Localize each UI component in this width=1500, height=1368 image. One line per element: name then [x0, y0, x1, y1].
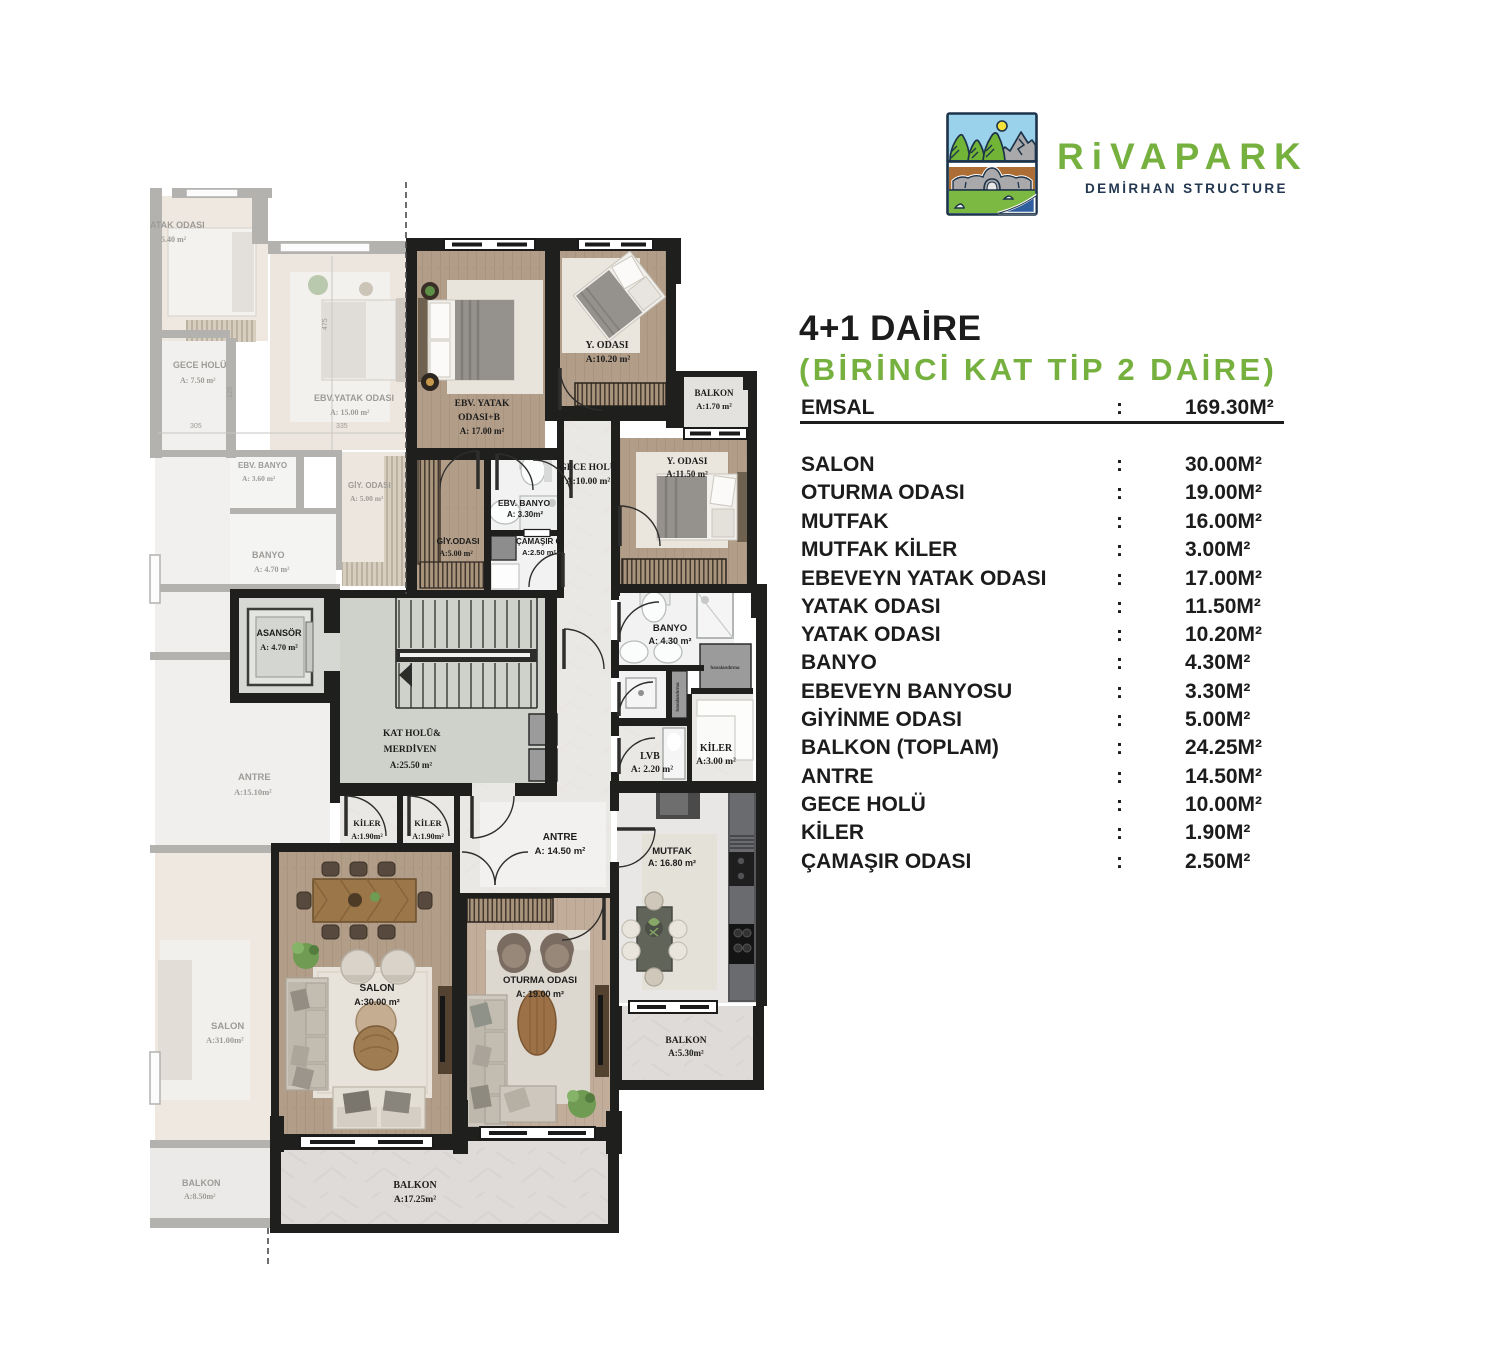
svg-text:EBEVEYN BANYOSU: EBEVEYN BANYOSU: [801, 680, 1012, 703]
svg-text:A:25.50 m²: A:25.50 m²: [390, 760, 432, 770]
svg-text:ATAK ODASI: ATAK ODASI: [150, 220, 205, 230]
svg-text:ÇAMAŞIR ODASI: ÇAMAŞIR ODASI: [801, 850, 971, 873]
svg-text:ANTRE: ANTRE: [801, 765, 873, 788]
svg-text:10.00M²: 10.00M²: [1185, 793, 1262, 816]
svg-text:BALKON (TOPLAM): BALKON (TOPLAM): [801, 736, 999, 759]
svg-text:SALON: SALON: [360, 983, 395, 994]
svg-text::: :: [1116, 651, 1123, 674]
svg-text:BALKON: BALKON: [393, 1180, 437, 1191]
svg-text:BANYO: BANYO: [653, 623, 687, 634]
svg-text:Y. ODASI: Y. ODASI: [667, 457, 708, 467]
svg-text:BALKON: BALKON: [694, 388, 734, 398]
svg-text:3.00M²: 3.00M²: [1185, 538, 1250, 561]
svg-text:EBV. YATAK: EBV. YATAK: [455, 399, 510, 409]
svg-text::: :: [1116, 765, 1123, 788]
svg-text:BALKON: BALKON: [665, 1036, 706, 1046]
svg-text:MUTFAK: MUTFAK: [652, 846, 692, 857]
svg-text:17.00M²: 17.00M²: [1185, 567, 1262, 590]
svg-text:120: 120: [227, 386, 234, 398]
svg-text:A:10.00 m²: A:10.00 m²: [566, 477, 611, 487]
svg-text:Y. ODASI: Y. ODASI: [586, 340, 629, 351]
svg-text:335: 335: [336, 423, 348, 430]
svg-text:A:31.00m²: A:31.00m²: [206, 1035, 244, 1045]
svg-text:24.25M²: 24.25M²: [1185, 736, 1262, 759]
svg-text::: :: [1116, 821, 1123, 844]
svg-text:KİLER: KİLER: [353, 818, 381, 828]
svg-text:EBV. BANYO: EBV. BANYO: [238, 461, 287, 470]
svg-text:ANTRE: ANTRE: [238, 772, 271, 783]
svg-text:A:17.25m²: A:17.25m²: [394, 1195, 436, 1205]
svg-text:DEMİRHAN STRUCTURE: DEMİRHAN STRUCTURE: [1085, 181, 1288, 196]
svg-text:A: 4.30 m²: A: 4.30 m²: [648, 636, 691, 646]
svg-text:A: 7.50 m²: A: 7.50 m²: [180, 376, 216, 385]
svg-text:SALON: SALON: [211, 1021, 244, 1032]
svg-text:A:8.50m²: A:8.50m²: [184, 1192, 216, 1201]
svg-text::: :: [1116, 850, 1123, 873]
svg-text:19.00M²: 19.00M²: [1185, 481, 1262, 504]
svg-text:A: 19.00 m²: A: 19.00 m²: [516, 989, 564, 999]
svg-text:ASANSÖR: ASANSÖR: [256, 628, 302, 638]
svg-text:4.30M²: 4.30M²: [1185, 651, 1250, 674]
svg-text:A:15.10m²: A:15.10m²: [234, 787, 272, 797]
svg-text:GİY.ODASI: GİY.ODASI: [437, 536, 480, 546]
svg-text::: :: [1116, 708, 1123, 731]
svg-text:havalandırma: havalandırma: [675, 682, 680, 712]
svg-text:GİY. ODASI: GİY. ODASI: [348, 481, 391, 490]
svg-text:A:1.90m²: A:1.90m²: [351, 832, 383, 841]
svg-text:KİLER: KİLER: [801, 821, 864, 844]
svg-text:A:1.90m²: A:1.90m²: [412, 832, 444, 841]
svg-text:RiVAPARK: RiVAPARK: [1057, 136, 1309, 177]
svg-text:5.40 m²: 5.40 m²: [161, 235, 187, 244]
svg-text:ANTRE: ANTRE: [543, 832, 578, 843]
svg-text:A:1.70 m²: A:1.70 m²: [696, 401, 732, 411]
svg-text:A:3.00 m²: A:3.00 m²: [696, 757, 736, 767]
svg-text:11.50M²: 11.50M²: [1185, 595, 1261, 618]
svg-text:MERDİVEN: MERDİVEN: [384, 743, 437, 755]
svg-text:14.50M²: 14.50M²: [1185, 765, 1262, 788]
svg-text:GİYİNME ODASI: GİYİNME ODASI: [801, 708, 962, 731]
svg-text:A:5.00 m²: A:5.00 m²: [439, 549, 473, 558]
svg-text:16.00M²: 16.00M²: [1185, 510, 1262, 533]
svg-text::: :: [1116, 793, 1123, 816]
svg-text::: :: [1116, 736, 1123, 759]
svg-text:A:5.30m²: A:5.30m²: [668, 1048, 704, 1058]
svg-text:4+1 DAİRE: 4+1 DAİRE: [799, 309, 982, 348]
svg-text:ÇAMAŞIR O.: ÇAMAŞIR O.: [516, 537, 564, 546]
svg-text::: :: [1116, 453, 1123, 476]
svg-text:YATAK ODASI: YATAK ODASI: [801, 595, 941, 618]
svg-text:BANYO: BANYO: [252, 550, 285, 560]
svg-text::: :: [1116, 595, 1123, 618]
svg-text:havalandırma: havalandırma: [710, 665, 740, 670]
svg-text:1.90M²: 1.90M²: [1185, 821, 1250, 844]
svg-text:A:11.50 m²: A:11.50 m²: [666, 469, 708, 479]
svg-text:169.30M²: 169.30M²: [1185, 396, 1274, 419]
svg-text:LVB: LVB: [640, 751, 660, 762]
svg-text:BANYO: BANYO: [801, 651, 877, 674]
svg-text:2.50M²: 2.50M²: [1185, 850, 1250, 873]
svg-text:GECE HOLÜ: GECE HOLÜ: [173, 360, 227, 370]
svg-text::: :: [1116, 680, 1123, 703]
svg-text::: :: [1116, 481, 1123, 504]
svg-text:305: 305: [190, 423, 202, 430]
svg-text:EBEVEYN YATAK ODASI: EBEVEYN YATAK ODASI: [801, 567, 1046, 590]
svg-text:YATAK ODASI: YATAK ODASI: [801, 623, 941, 646]
svg-text:5.00M²: 5.00M²: [1185, 708, 1250, 731]
svg-text:A: 17.00 m²: A: 17.00 m²: [460, 426, 505, 436]
svg-text:A:2.50 m²: A:2.50 m²: [522, 548, 556, 557]
svg-text::: :: [1116, 623, 1123, 646]
svg-text:KİLER: KİLER: [414, 818, 442, 828]
svg-text:EBV. BANYO: EBV. BANYO: [498, 498, 551, 508]
svg-text::: :: [1116, 538, 1123, 561]
svg-text:ODASI+B: ODASI+B: [458, 413, 501, 423]
svg-text:BALKON: BALKON: [182, 1178, 221, 1188]
svg-text:A:30.00 m²: A:30.00 m²: [354, 997, 400, 1007]
svg-text:A: 2.20 m²: A: 2.20 m²: [631, 765, 673, 775]
svg-text:475: 475: [322, 318, 329, 330]
svg-text:A: 4.70 m²: A: 4.70 m²: [260, 642, 298, 652]
svg-text:A:10.20 m²: A:10.20 m²: [586, 355, 631, 365]
svg-text:A: 14.50 m²: A: 14.50 m²: [535, 846, 586, 857]
svg-text:3.30M²: 3.30M²: [1185, 680, 1250, 703]
svg-text:MUTFAK: MUTFAK: [801, 510, 889, 533]
svg-text:A: 4.70 m²: A: 4.70 m²: [254, 565, 290, 574]
svg-text:A: 3.30m²: A: 3.30m²: [507, 510, 543, 519]
svg-text:EMSAL: EMSAL: [801, 396, 875, 419]
svg-text:KİLER: KİLER: [700, 742, 733, 754]
svg-text:SALON: SALON: [801, 453, 875, 476]
svg-text:A: 15.00 m²: A: 15.00 m²: [330, 408, 370, 417]
svg-text:(BİRİNCİ KAT TİP 2 DAİRE): (BİRİNCİ KAT TİP 2 DAİRE): [799, 352, 1277, 387]
svg-text::: :: [1116, 396, 1123, 419]
svg-text::: :: [1116, 567, 1123, 590]
svg-text:A: 5.00 m²: A: 5.00 m²: [350, 494, 384, 503]
svg-text:10.20M²: 10.20M²: [1185, 623, 1262, 646]
svg-text:GECE HOLÜ: GECE HOLÜ: [801, 793, 926, 816]
svg-text:EBV.YATAK ODASI: EBV.YATAK ODASI: [314, 393, 394, 403]
svg-text::: :: [1116, 510, 1123, 533]
svg-text:A: 3.60 m²: A: 3.60 m²: [242, 474, 276, 483]
svg-text:OTURMA ODASI: OTURMA ODASI: [801, 481, 965, 504]
svg-text:MUTFAK KİLER: MUTFAK KİLER: [801, 538, 957, 561]
svg-text:OTURMA ODASI: OTURMA ODASI: [503, 975, 577, 986]
svg-text:A: 16.80 m²: A: 16.80 m²: [648, 858, 696, 868]
svg-text:30.00M²: 30.00M²: [1185, 453, 1262, 476]
